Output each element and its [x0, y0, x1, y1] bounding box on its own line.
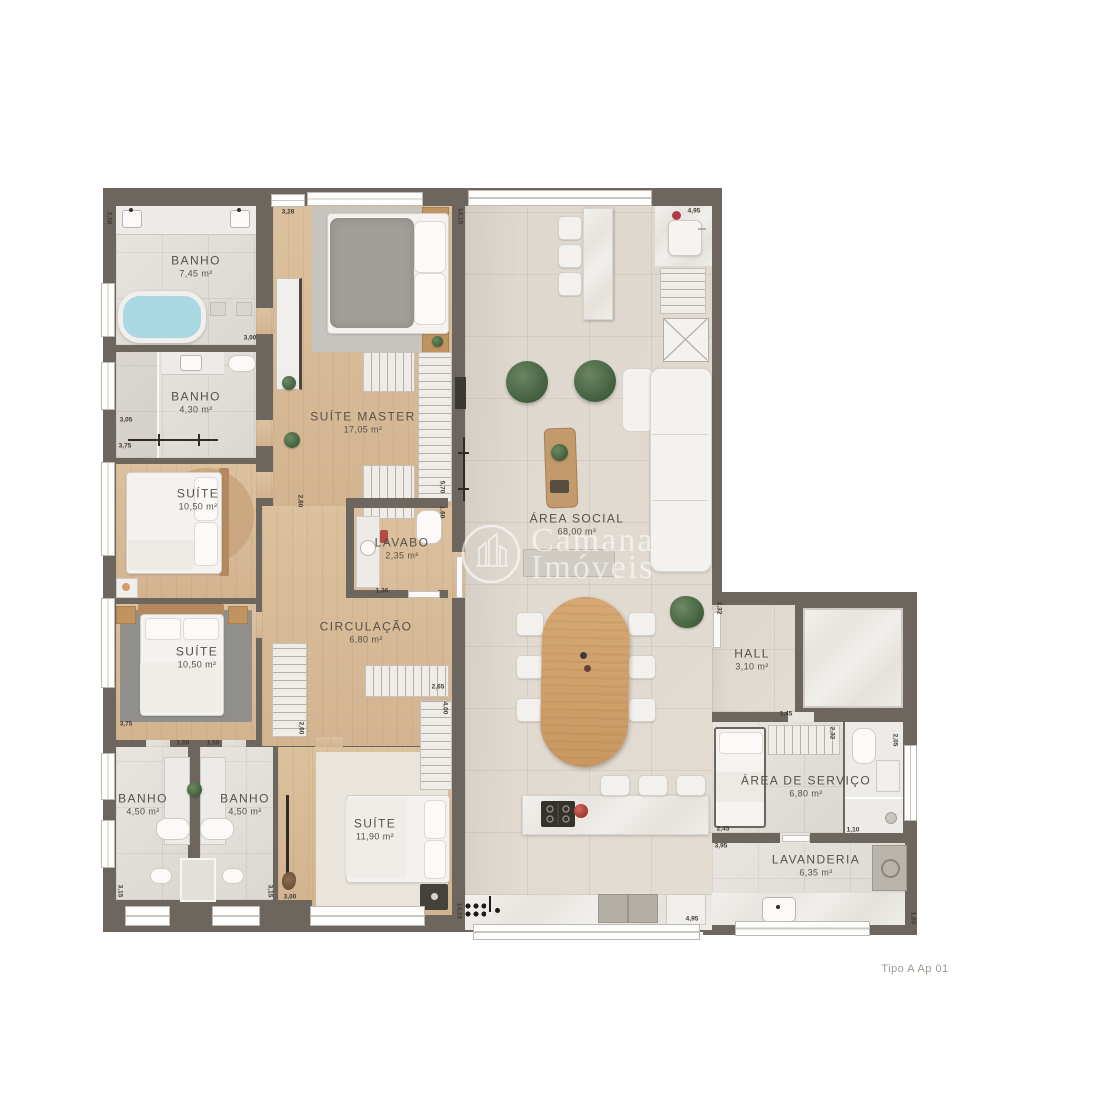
- tv-panel: [455, 377, 466, 409]
- dim-label: 3,15: [117, 885, 124, 898]
- dim-label: 1,50: [177, 740, 190, 747]
- track-tick: [158, 434, 160, 446]
- dim-label: 1,45: [780, 711, 793, 718]
- dim-label: 1,10: [847, 827, 860, 834]
- x-mark: [664, 319, 707, 360]
- dining-table: [540, 596, 631, 768]
- window: [271, 194, 305, 207]
- dim-label: 3,05: [120, 417, 133, 424]
- dim-label: 3,75: [119, 443, 132, 450]
- wardrobe: [365, 665, 449, 697]
- counter-stool: [638, 775, 668, 796]
- dim-label: 2,65: [432, 684, 445, 691]
- dim-label: 3,15: [267, 885, 274, 898]
- bathtub: [118, 291, 206, 343]
- pillow: [719, 732, 763, 754]
- room-label-lavabo: LAVABO2,35 m²: [375, 536, 430, 561]
- plant-icon: [432, 336, 443, 347]
- bath-mat: [156, 818, 190, 840]
- room-label-banho-450a: BANHO4,50 m²: [118, 792, 168, 817]
- room-label-suite-master: SUÍTE MASTER17,05 m²: [310, 410, 415, 435]
- cooktop: [541, 801, 575, 827]
- red-decor-dot: [672, 211, 681, 220]
- entry-flag-pole: [489, 896, 491, 912]
- bar-stool: [558, 216, 582, 240]
- counter-stool: [600, 775, 630, 796]
- room-label-suite-2: SUÍTE10,50 m²: [176, 645, 218, 670]
- dim-label: 2,60: [298, 722, 305, 735]
- dim-label: 3,95: [715, 843, 728, 850]
- dining-chair: [516, 612, 544, 636]
- room-label-hall: HALL3,10 m²: [734, 647, 770, 672]
- lavabo-wall: [346, 508, 354, 598]
- window: [735, 921, 870, 936]
- toilet: [150, 868, 172, 884]
- nightstand: [228, 606, 248, 624]
- sofa-cushion-line: [652, 500, 708, 501]
- green-stool: [506, 361, 548, 403]
- pillow: [424, 800, 446, 839]
- faucet-dot: [776, 905, 780, 909]
- blanket-fold: [140, 662, 222, 712]
- dim-label: 1,65: [910, 912, 917, 925]
- nightstand: [116, 606, 136, 624]
- dim-label: 3,75: [120, 721, 133, 728]
- shower-head: [885, 812, 897, 824]
- table-decor-dot: [584, 665, 591, 672]
- lavabo-wall: [346, 498, 448, 508]
- dim-label: 14,15: [457, 208, 464, 224]
- vanity-counter: [876, 760, 900, 792]
- track-tick: [458, 452, 469, 454]
- storage-x-cabinet: [663, 318, 709, 362]
- dining-chair: [628, 612, 656, 636]
- track-symbol: [128, 439, 218, 441]
- toilet: [852, 728, 876, 764]
- dim-label: 2,32: [716, 602, 723, 615]
- pillow: [424, 840, 446, 879]
- plant-icon: [551, 444, 568, 461]
- table-decor-dot: [580, 652, 587, 659]
- door-gap-suite1190: [315, 737, 343, 747]
- floor-plan-canvas: BANHO7,45 m² BANHO4,30 m² SUÍTE10,50 m² …: [0, 0, 1100, 1100]
- window: [101, 362, 115, 410]
- plant-icon: [282, 376, 296, 390]
- door-gap-banho430: [256, 420, 273, 446]
- track-tick: [198, 434, 200, 446]
- dim-label: 2,05: [892, 734, 899, 747]
- room-label-suite-1190: SUÍTE11,90 m²: [354, 817, 396, 842]
- shared-shower: [180, 858, 216, 902]
- door-gap-banho450b: [222, 740, 246, 747]
- appliance: [598, 894, 628, 923]
- kitchen-island: [583, 208, 613, 320]
- counter-stool: [676, 775, 706, 796]
- door-gap-suite2: [256, 612, 262, 638]
- laundry-sink: [762, 897, 796, 922]
- dim-label: 5,70: [439, 481, 446, 494]
- table-tray: [550, 480, 569, 493]
- lamp-dot: [431, 893, 438, 900]
- elevator-shaft: [803, 608, 903, 708]
- duvet-gray: [330, 218, 414, 328]
- dining-chair: [516, 655, 544, 679]
- sink-round: [360, 540, 376, 556]
- bath-mat: [200, 818, 234, 840]
- track-symbol: [463, 437, 465, 501]
- sink: [122, 210, 142, 228]
- dim-label: 1,36: [376, 588, 389, 595]
- bar-stool: [558, 272, 582, 296]
- room-label-circulacao: CIRCULAÇÃO6,80 m²: [320, 620, 413, 645]
- floor-drain: [236, 302, 252, 316]
- room-label-area-social: ÁREA SOCIAL68,00 m²: [530, 512, 625, 537]
- faucet-dot: [237, 208, 241, 212]
- tall-cabinet: [276, 278, 302, 390]
- dim-label: 2,60: [297, 495, 304, 508]
- dim-label: 2,50: [106, 212, 113, 225]
- toilet: [228, 355, 256, 372]
- plan-caption: Tipo A Ap 01: [881, 963, 948, 975]
- plant-large: [670, 596, 704, 628]
- window: [101, 820, 115, 868]
- window: [101, 598, 115, 688]
- plant-icon: [284, 432, 300, 448]
- room-label-banho-430: BANHO4,30 m²: [171, 390, 221, 415]
- bar-stool: [558, 244, 582, 268]
- plant-icon: [187, 782, 202, 797]
- sink: [230, 210, 250, 228]
- fridge: [668, 220, 702, 256]
- closet-shelves: [363, 352, 415, 392]
- window: [101, 462, 115, 556]
- appliance: [628, 894, 658, 923]
- pillow: [194, 522, 218, 566]
- pantry-shelves: [660, 268, 706, 314]
- door-leaf-lavabo: [408, 591, 440, 598]
- floor-drain: [210, 302, 226, 316]
- coffee-table: [544, 427, 579, 508]
- door-leaf-hall: [713, 612, 721, 648]
- window: [125, 906, 170, 926]
- towel-rail: [286, 795, 289, 873]
- closet-shelves: [363, 465, 415, 519]
- sideboard: [523, 549, 615, 577]
- room-label-suite-1: SUÍTE10,50 m²: [177, 487, 219, 512]
- window: [212, 906, 260, 926]
- sofa: [650, 368, 712, 572]
- pillow: [414, 221, 446, 273]
- door-gap-suite1: [256, 472, 273, 498]
- dim-label: 3,28: [282, 209, 295, 216]
- burners: [541, 801, 575, 827]
- pillow: [414, 273, 446, 325]
- dim-label: 4,95: [688, 208, 701, 215]
- dim-label: 1,60: [439, 506, 446, 519]
- track-tick: [458, 488, 469, 490]
- toilet: [222, 868, 244, 884]
- dim-label: 2,45: [717, 826, 730, 833]
- dining-chair: [628, 655, 656, 679]
- window: [307, 192, 423, 206]
- window: [101, 283, 115, 337]
- pillow: [183, 618, 219, 640]
- sofa-cushion-line: [652, 434, 708, 435]
- pillow: [145, 618, 181, 640]
- blanket-fold: [128, 540, 194, 570]
- entry-flag-dot: [495, 908, 500, 913]
- room-label-banho-450b: BANHO4,50 m²: [220, 792, 270, 817]
- dim-label: 1,50: [207, 740, 220, 747]
- dim-label: 3,00: [244, 335, 257, 342]
- door-gap-banho450a: [146, 740, 170, 747]
- window-large: [468, 190, 652, 206]
- washer-door: [881, 859, 900, 878]
- sliding-door: [473, 924, 700, 940]
- dining-chair: [628, 698, 656, 722]
- green-stool: [574, 360, 616, 402]
- decor-bowl: [122, 583, 130, 591]
- fridge-handle: [698, 228, 706, 230]
- door-gap-banho745: [256, 308, 273, 334]
- room-label-lavanderia: LAVANDERIA6,35 m²: [772, 853, 860, 878]
- red-kettle: [574, 804, 588, 818]
- window: [310, 906, 425, 926]
- faucet-dot: [129, 208, 133, 212]
- dim-label: 14,15: [456, 903, 463, 919]
- dim-label: 4,00: [442, 702, 449, 715]
- window: [904, 745, 917, 821]
- dim-label: 2,32: [829, 727, 836, 740]
- window: [101, 753, 115, 800]
- entry-symbols: [464, 902, 486, 918]
- room-label-banho-745: BANHO7,45 m²: [171, 254, 221, 279]
- door-leaf-lavanderia: [782, 835, 810, 842]
- dim-label: 4,95: [686, 916, 699, 923]
- closet-shelves: [418, 352, 452, 502]
- dim-label: 3,00: [284, 894, 297, 901]
- room-label-area-servico: ÁREA DE SERVIÇO6,80 m²: [741, 774, 871, 799]
- sink: [180, 355, 202, 371]
- door-leaf-social-corridor: [456, 556, 463, 598]
